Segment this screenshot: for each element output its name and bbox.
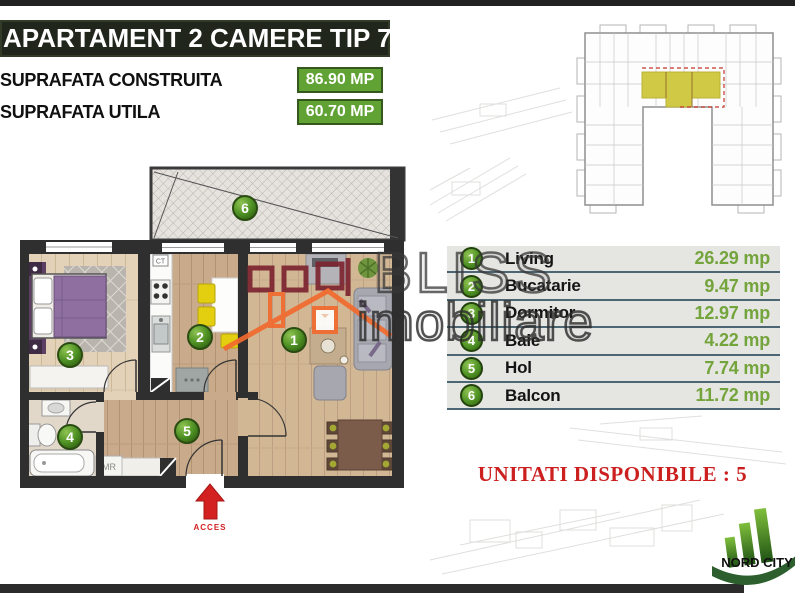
access-label: ACCES (193, 523, 226, 532)
room-marker-balcon: 6 (233, 196, 257, 220)
washing-machine-label: MR (102, 462, 116, 472)
table-row: 4 Baie 4.22 mp (447, 328, 780, 355)
room-legend-table: 1 Living 26.29 mp 2 Bucatarie 9.47 mp 3 … (447, 246, 780, 410)
kitchen-cabinet (176, 368, 208, 392)
windows (46, 242, 384, 252)
toilet (28, 424, 56, 446)
availability-text: UNITATI DISPONIBILE : 5 (450, 462, 775, 487)
svg-text:2: 2 (196, 329, 204, 345)
svg-text:3: 3 (66, 347, 74, 363)
armchair (314, 366, 346, 400)
room-area: 26.29 mp (695, 248, 770, 269)
row-number-badge: 6 (460, 384, 483, 407)
room-name: Dormitor (505, 303, 575, 323)
bed (32, 274, 106, 338)
table-row: 1 Living 26.29 mp (447, 246, 780, 273)
room-marker-dormitor: 3 (58, 343, 82, 367)
access-arrow: ACCES (193, 484, 226, 532)
table-row: 3 Dormitor 12.97 mp (447, 301, 780, 328)
bathtub (30, 450, 94, 476)
room-marker-baie: 4 (58, 425, 82, 449)
table-row: 5 Hol 7.74 mp (447, 356, 780, 383)
wardrobe (30, 366, 108, 388)
bathroom-sink (42, 400, 70, 416)
room-name: Balcon (505, 386, 560, 406)
svg-text:5: 5 (183, 423, 191, 439)
row-number-badge: 3 (460, 302, 483, 325)
room-name: Baie (505, 331, 540, 351)
svg-text:1: 1 (290, 332, 298, 348)
room-area: 11.72 mp (696, 385, 770, 406)
row-number-badge: 5 (460, 357, 483, 380)
room-area: 9.47 mp (704, 276, 770, 297)
room-marker-bucatarie: 2 (188, 325, 212, 349)
room-marker-living: 1 (282, 328, 306, 352)
room-area: 12.97 mp (695, 303, 770, 324)
svg-text:4: 4 (66, 429, 74, 445)
building-key-plan (577, 25, 781, 213)
sofa (354, 288, 392, 370)
row-number-badge: 1 (460, 247, 483, 270)
kitchen-sink (152, 316, 170, 352)
kitchen-table (212, 278, 238, 332)
row-number-badge: 2 (460, 275, 483, 298)
flyer-canvas: CT (0, 0, 795, 596)
dining-set (327, 420, 393, 470)
table-row: 2 Bucatarie 9.47 mp (447, 273, 780, 300)
room-marker-hol: 5 (175, 419, 199, 443)
room-name: Hol (505, 358, 532, 378)
developer-logo-text: NORD CITY (721, 555, 793, 570)
room-area: 7.74 mp (704, 358, 770, 379)
floor-plan: CT (20, 168, 404, 532)
room-name: Living (505, 249, 554, 269)
room-name: Bucatarie (505, 276, 581, 296)
row-number-badge: 4 (460, 329, 483, 352)
boiler-label: CT (156, 259, 166, 266)
room-area: 4.22 mp (704, 330, 770, 351)
svg-text:6: 6 (241, 200, 249, 216)
plant (358, 258, 378, 278)
stove (151, 280, 170, 304)
developer-logo: NORD CITY (712, 508, 795, 585)
table-row: 6 Balcon 11.72 mp (447, 383, 780, 410)
building-outline (585, 33, 773, 205)
